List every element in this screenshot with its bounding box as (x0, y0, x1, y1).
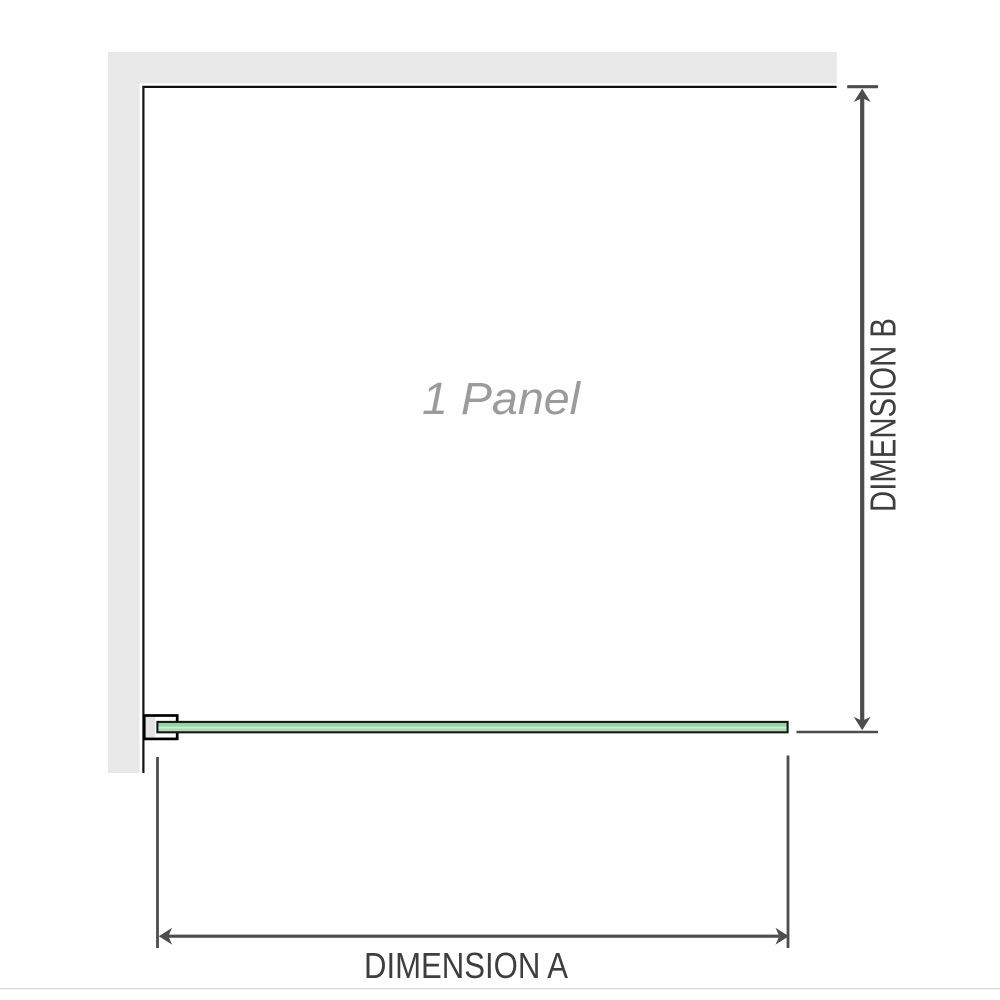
svg-text:DIMENSION A: DIMENSION A (364, 945, 568, 986)
svg-text:1 Panel: 1 Panel (422, 373, 582, 424)
svg-text:DIMENSION B: DIMENSION B (863, 318, 904, 512)
